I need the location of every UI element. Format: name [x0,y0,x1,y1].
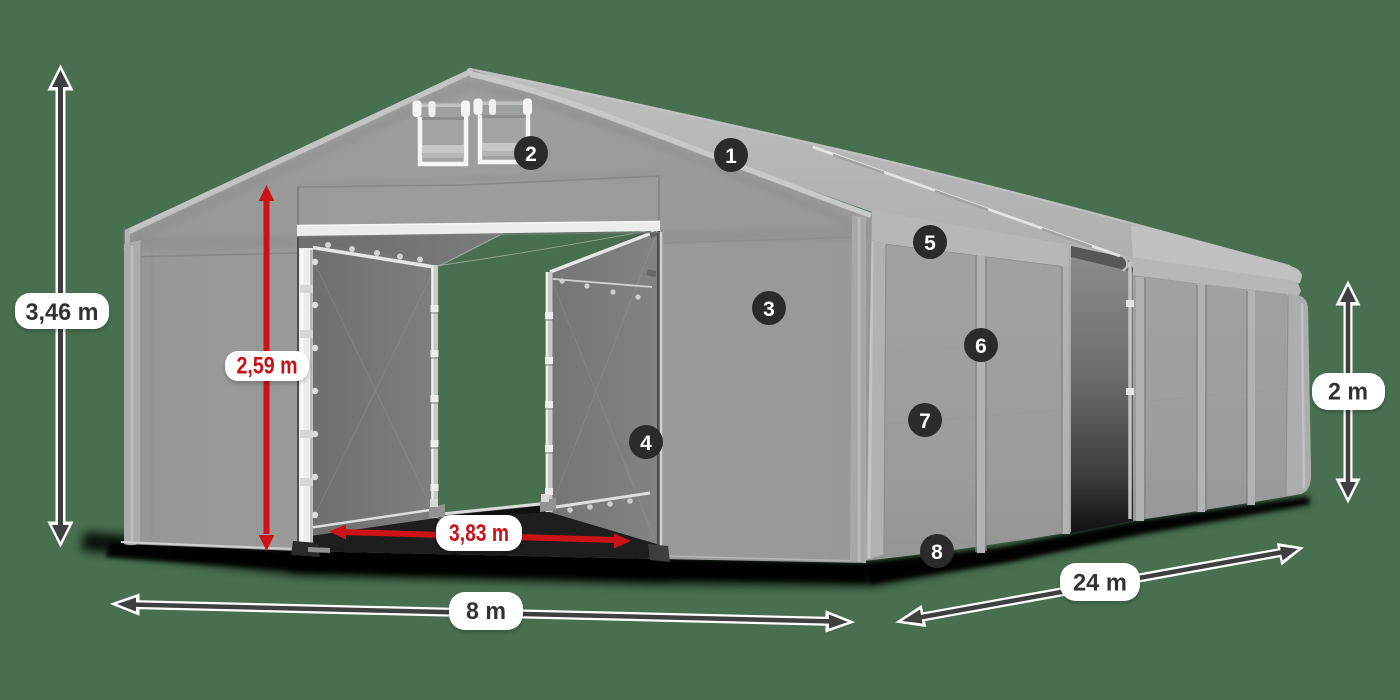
svg-text:4: 4 [640,432,652,455]
svg-text:6: 6 [975,335,987,358]
svg-text:2,59 m: 2,59 m [237,353,298,380]
svg-text:3,46 m: 3,46 m [26,299,99,326]
svg-text:24 m: 24 m [1073,570,1127,597]
svg-text:5: 5 [924,232,936,255]
svg-text:8 m: 8 m [466,598,506,625]
svg-text:3: 3 [763,298,775,321]
svg-text:3,83 m: 3,83 m [449,520,509,547]
svg-text:2 m: 2 m [1328,379,1368,406]
svg-text:7: 7 [919,410,931,433]
svg-text:2: 2 [525,143,537,166]
svg-text:8: 8 [931,541,943,564]
svg-text:1: 1 [725,145,737,168]
